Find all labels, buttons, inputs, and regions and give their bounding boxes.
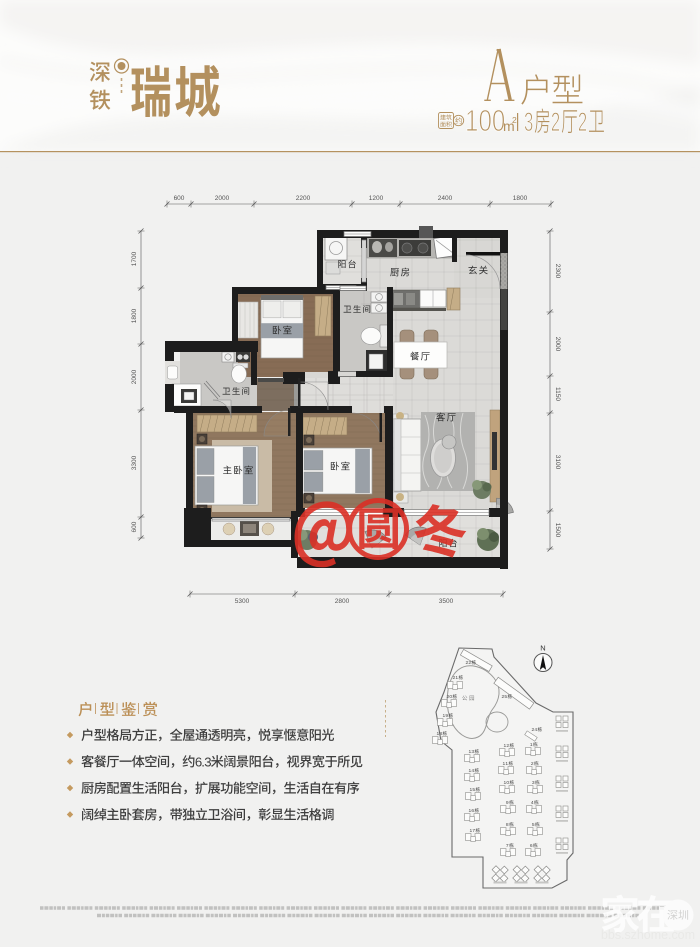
svg-text:16: 16 <box>468 808 474 814</box>
svg-text:2000: 2000 <box>131 369 138 384</box>
svg-text:3500: 3500 <box>439 598 454 605</box>
svg-text:7: 7 <box>506 843 509 849</box>
svg-text:4: 4 <box>531 800 534 806</box>
svg-text:1150: 1150 <box>554 387 561 401</box>
svg-text:1: 1 <box>530 742 533 748</box>
svg-text:24: 24 <box>531 727 537 733</box>
svg-text:2400: 2400 <box>438 195 453 202</box>
svg-text:3: 3 <box>532 780 535 786</box>
svg-text:600: 600 <box>174 195 185 202</box>
svg-text:11: 11 <box>502 761 508 767</box>
svg-text:17: 17 <box>469 828 475 834</box>
svg-text:21: 21 <box>452 675 458 681</box>
svg-text:25: 25 <box>501 694 507 700</box>
svg-text:600: 600 <box>131 521 138 532</box>
svg-text:2: 2 <box>512 115 517 125</box>
svg-text:5300: 5300 <box>235 598 250 605</box>
svg-text:2000: 2000 <box>554 337 561 352</box>
svg-text:6: 6 <box>530 843 533 849</box>
svg-text:15: 15 <box>469 787 475 793</box>
svg-text:20: 20 <box>446 694 452 700</box>
svg-text:13: 13 <box>468 749 474 755</box>
svg-text:19: 19 <box>442 713 448 719</box>
svg-text:3300: 3300 <box>131 455 138 470</box>
svg-text:100: 100 <box>465 103 505 138</box>
svg-text:3100: 3100 <box>554 455 561 470</box>
svg-text:5: 5 <box>532 822 535 828</box>
svg-text:8: 8 <box>506 822 509 828</box>
svg-text:2200: 2200 <box>296 195 311 202</box>
svg-text:2: 2 <box>531 761 534 767</box>
svg-text:1800: 1800 <box>131 308 138 323</box>
svg-text:2800: 2800 <box>335 598 350 605</box>
svg-text:12: 12 <box>503 743 509 749</box>
svg-text:1500: 1500 <box>554 523 561 538</box>
svg-text:2300: 2300 <box>554 264 561 279</box>
svg-text:2000: 2000 <box>215 195 230 202</box>
svg-text:1700: 1700 <box>131 251 138 266</box>
svg-text:N: N <box>540 644 545 653</box>
svg-text:3: 3 <box>204 754 211 769</box>
svg-text:10: 10 <box>503 780 509 786</box>
svg-text:2: 2 <box>551 107 560 137</box>
svg-text:3: 3 <box>524 107 533 137</box>
svg-text:22: 22 <box>465 660 471 666</box>
svg-text:14: 14 <box>468 768 474 774</box>
svg-text:9: 9 <box>506 800 509 806</box>
svg-text:1800: 1800 <box>513 195 528 202</box>
svg-text:1200: 1200 <box>369 195 384 202</box>
svg-text:2: 2 <box>578 107 587 137</box>
svg-text:bbs.szhome.com: bbs.szhome.com <box>601 928 695 942</box>
svg-text:18: 18 <box>436 731 442 737</box>
